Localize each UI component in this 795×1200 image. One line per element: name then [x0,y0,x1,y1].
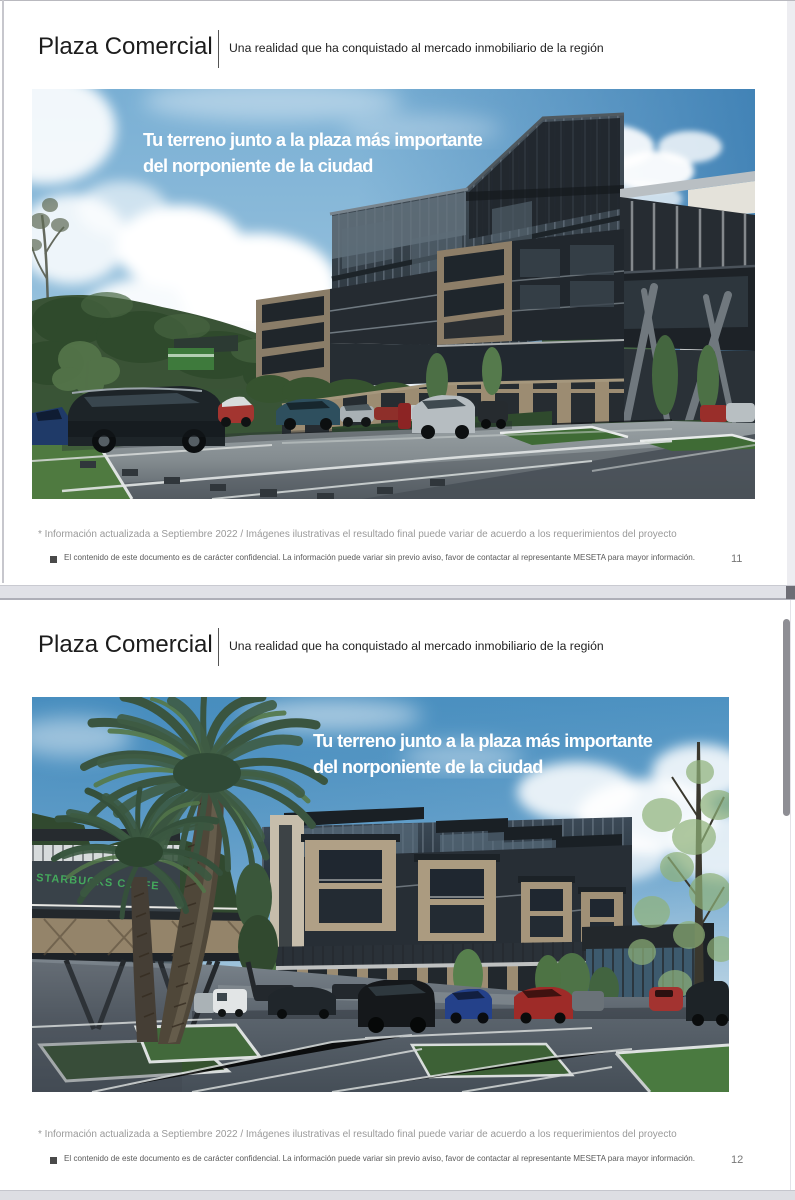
svg-text:Tu terreno junto a la plaza má: Tu terreno junto a la plaza más importan… [313,731,653,751]
svg-text:del norponiente de la ciudad: del norponiente de la ciudad [143,156,373,176]
svg-text:del norponiente de la ciudad: del norponiente de la ciudad [313,757,543,777]
svg-text:Tu terreno junto a la plaza má: Tu terreno junto a la plaza más importan… [143,130,483,150]
